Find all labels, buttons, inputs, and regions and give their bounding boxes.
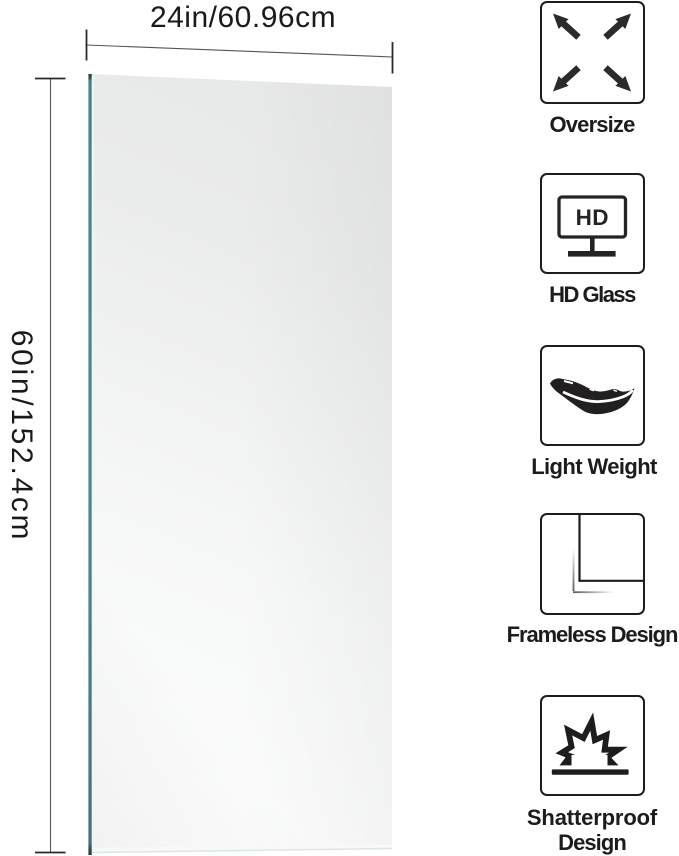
svg-text:HD: HD [575,205,608,230]
